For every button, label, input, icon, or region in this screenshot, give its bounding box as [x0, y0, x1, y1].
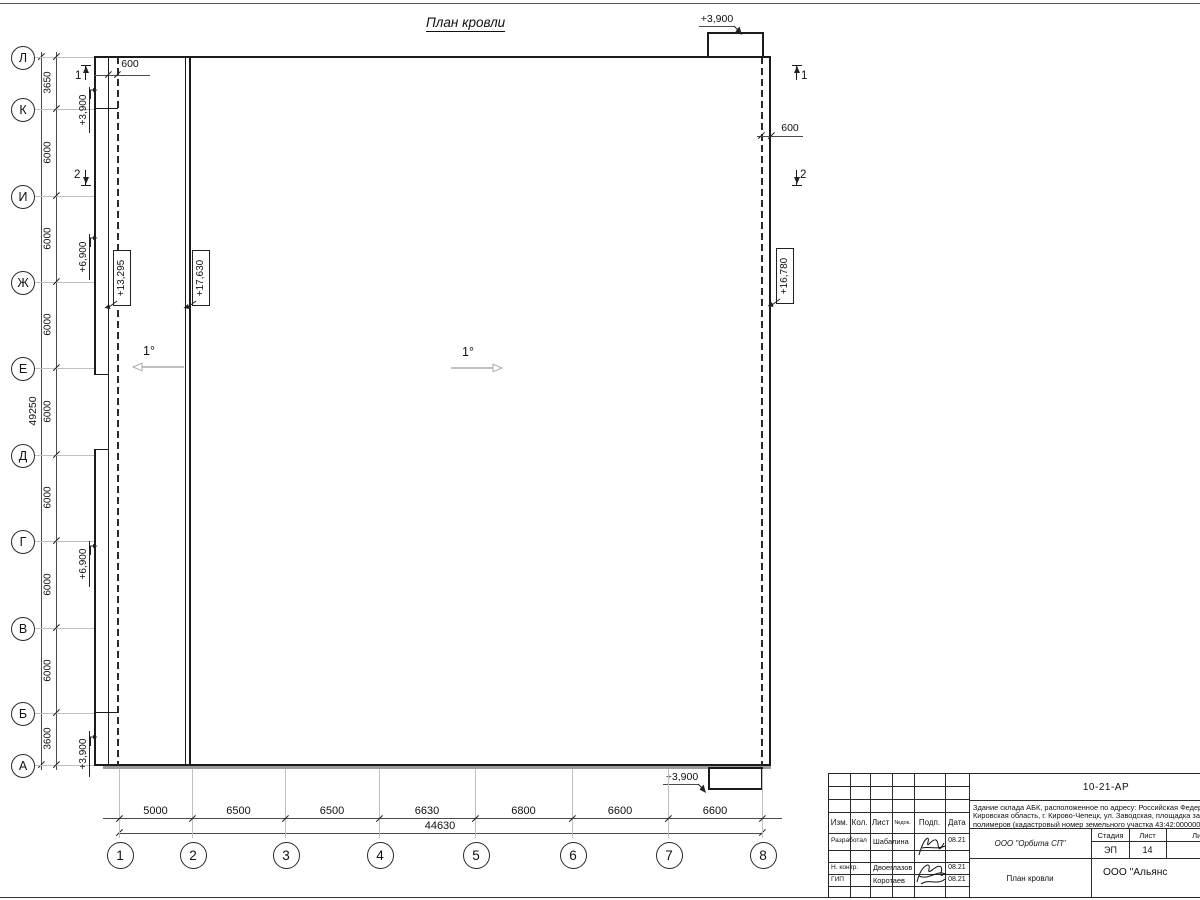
canopy-top-elevation: +3,900 [697, 13, 737, 25]
tb-name: Двоеглазов [873, 863, 912, 872]
axis-extension-col [475, 769, 476, 838]
axis-extension-col [668, 769, 669, 838]
tb-date: 08.21 [945, 876, 968, 883]
roof-plan-sheet: План кровли +3,900 +3,900 1° 1° 600 600 … [0, 0, 1200, 900]
axis-extension-col [285, 769, 286, 838]
axis-circle-col: 2 [180, 842, 207, 869]
tb-sheets-label: Листов [1166, 831, 1200, 840]
col-dim-text: 6800 [494, 805, 554, 817]
tb-name: Шабалина [873, 837, 909, 846]
tb-name: Коротаев [873, 876, 905, 885]
signature [913, 858, 947, 891]
axis-circle-row: И [11, 185, 35, 209]
axis-circle-col: 8 [750, 842, 777, 869]
row-dim-text: 6000 [43, 129, 54, 175]
title-block: Изм. Кол. Лист №док. Подп. Дата Разработ… [828, 773, 1200, 898]
frame-top [0, 3, 1200, 4]
axis-circle-row: Л [11, 46, 35, 70]
elevation-arrow [84, 542, 98, 560]
axis-extension-col [379, 769, 380, 838]
roof-edge-dashed-left [117, 57, 118, 765]
axis-circle-col: 6 [560, 842, 587, 869]
elevation-leader-arrow [767, 297, 781, 315]
offset-dim-line-left [94, 75, 150, 76]
col-dim-text: 6600 [685, 805, 745, 817]
tb-doc-number: 10-21-АР [969, 782, 1200, 793]
tb-sheet-value: 14 [1129, 845, 1166, 855]
tb-org: ООО "Альянс [1103, 867, 1168, 878]
axis-circle-col: 4 [367, 842, 394, 869]
roof-edge-dashed-right [761, 57, 762, 765]
axis-circle-row: Ж [11, 271, 35, 295]
axis-line-row [33, 282, 94, 283]
row-dim-text: 6000 [43, 561, 54, 607]
row-dim-text: 3600 [43, 716, 54, 762]
canopy-bottom [708, 767, 763, 791]
row-dim-text: 6000 [43, 302, 54, 348]
row-dim-text: 6000 [43, 475, 54, 521]
canopy-top-elevation-underline [699, 26, 735, 27]
col-dim-text: 6600 [590, 805, 650, 817]
axis-circle-row: Б [11, 702, 35, 726]
offset-dim-line-right [757, 136, 803, 137]
section-number: 1 [801, 70, 807, 82]
annex-inner-wall [108, 57, 110, 765]
col-dim-text: 6500 [209, 805, 269, 817]
tb-col-podp: Подп. [914, 818, 946, 827]
axis-line-row [33, 368, 94, 369]
row-total-dim: 49250 [27, 385, 39, 437]
section-arrow-up [83, 66, 89, 73]
roof-bottom-edge [94, 764, 771, 766]
tb-role: Н. контр. [831, 864, 858, 871]
axis-circle-row: В [11, 617, 35, 641]
wall-joint-B [94, 712, 118, 713]
drawing-title: План кровли [426, 15, 505, 32]
main-left-wall-outer [185, 57, 187, 765]
col-total-dim-line [119, 833, 762, 834]
elevation-arrow [84, 733, 98, 751]
roof-elevation-box: +16,780 [776, 248, 794, 304]
tb-stage-label: Стадия [1092, 831, 1129, 840]
row-dim-text: 6000 [43, 216, 54, 262]
col-dim-text: 6500 [302, 805, 362, 817]
col-total-dim: 44630 [410, 820, 470, 832]
tb-description-line3: полимеров (кадастровый номер земельного … [973, 820, 1200, 829]
tb-sheets-value: 17 [1166, 845, 1200, 855]
tb-col-list: Лист [870, 818, 892, 827]
tb-date: 08.21 [945, 864, 968, 871]
row-dim-chain-line [56, 52, 57, 770]
tb-date: 08.21 [945, 837, 968, 844]
section-arrow-down [794, 177, 800, 184]
row-dim-text: 6000 [43, 388, 54, 434]
axis-line-row [33, 196, 94, 197]
axis-extension-col [572, 769, 573, 838]
section-number: 1 [75, 70, 81, 82]
axis-circle-row: Г [11, 530, 35, 554]
axis-line-row [33, 57, 94, 58]
tb-role: Разработал [831, 837, 867, 844]
tb-sheet-label: Лист [1129, 831, 1166, 840]
main-left-wall-inner [189, 57, 191, 765]
row-dim-text: 6000 [43, 647, 54, 693]
tb-company: ООО "Орбита СП" [969, 839, 1091, 848]
annex-outer-wall-upper [94, 57, 96, 375]
tb-role: ГИП [831, 876, 844, 883]
canopy-bottom-arrow [697, 782, 711, 801]
wall-joint-K [94, 108, 118, 109]
offset-dim-left: 600 [114, 58, 146, 70]
axis-extension-col [192, 769, 193, 838]
roof-elevation-box: +17,630 [192, 250, 210, 306]
slope-arrow-left [128, 360, 186, 379]
right-wall [769, 56, 771, 766]
tb-col-kol: Кол. [850, 818, 870, 827]
axis-circle-row: Е [11, 357, 35, 381]
row-dim-text: 3650 [43, 60, 54, 106]
axis-circle-col: 7 [656, 842, 683, 869]
annex-cap-bottom [94, 449, 110, 450]
section-number: 2 [74, 169, 80, 181]
roof-top-edge [94, 56, 771, 58]
offset-dim-right: 600 [774, 122, 806, 134]
section-number: 2 [800, 169, 806, 181]
section-arrow-up [794, 66, 800, 73]
axis-circle-col: 5 [463, 842, 490, 869]
axis-circle-row: А [11, 754, 35, 778]
axis-circle-col: 3 [273, 842, 300, 869]
axis-extension-col [119, 769, 120, 838]
slope-arrow-center [449, 361, 507, 380]
col-dim-text: 6630 [397, 805, 457, 817]
section-arrow-down [83, 177, 89, 184]
tb-col-ndok: №док. [892, 820, 914, 826]
elevation-arrow [84, 86, 98, 104]
elevation-leader-arrow [183, 299, 197, 317]
axis-circle-col: 1 [107, 842, 134, 869]
axis-line-row [33, 713, 94, 714]
col-dim-text: 5000 [126, 805, 186, 817]
tb-col-izm: Изм. [829, 818, 850, 827]
tb-stage-value: ЭП [1092, 845, 1129, 855]
roof-bottom-shadow [103, 766, 771, 769]
elevation-arrow [84, 234, 98, 252]
roof-elevation-box: +13,295 [113, 250, 131, 306]
slope-value-center: 1° [462, 345, 474, 359]
axis-circle-row: Д [11, 444, 35, 468]
annex-outer-wall-lower [94, 449, 96, 766]
tb-drawing-title: План кровли [969, 874, 1091, 883]
axis-line-row [33, 628, 94, 629]
tb-col-data: Дата [945, 818, 968, 827]
elevation-leader-arrow [104, 299, 118, 317]
annex-cap-top [94, 374, 110, 375]
canopy-top-arrow [733, 24, 747, 43]
axis-extension-col [762, 769, 763, 838]
axis-line-row [33, 455, 94, 456]
axis-circle-row: К [11, 98, 35, 122]
slope-value-left: 1° [143, 344, 155, 358]
